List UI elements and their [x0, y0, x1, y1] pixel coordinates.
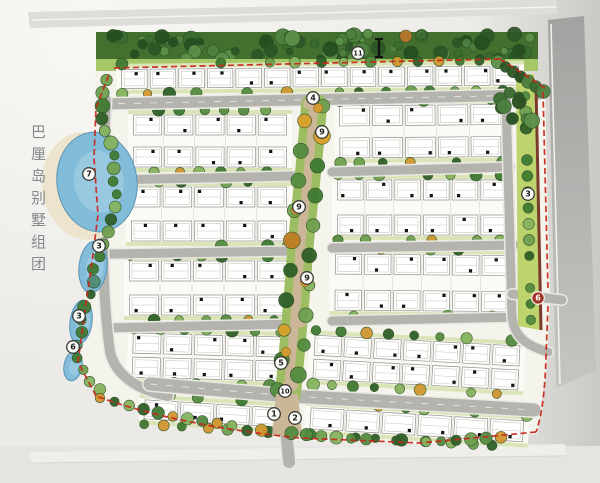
villa-marker-square: [139, 371, 142, 374]
plan-key-marker-10-11: 10: [279, 385, 292, 398]
villa-marker-square: [144, 224, 147, 227]
tree-icon: [522, 171, 533, 182]
villa-marker-square: [473, 294, 476, 297]
key-marker-number: 6: [535, 294, 541, 303]
villa-marker-square: [155, 403, 158, 406]
villa-marker-square: [298, 71, 301, 74]
villa-marker-square: [269, 150, 272, 153]
villa-marker-square: [411, 367, 414, 370]
tree-icon: [264, 44, 277, 57]
villa-marker-square: [355, 351, 358, 354]
tree-icon: [99, 126, 110, 137]
villa-marker-square: [363, 70, 366, 73]
tree-icon: [480, 432, 492, 444]
tree-icon: [110, 151, 119, 160]
shrub-orange: [281, 347, 290, 356]
villa-marker-square: [375, 268, 378, 271]
villa-marker-square: [137, 336, 140, 339]
villa-marker-square: [237, 129, 240, 132]
tree-icon: [307, 378, 320, 391]
villa-marker-square: [178, 150, 181, 153]
villa-marker-square: [203, 373, 206, 376]
tree-icon: [436, 332, 445, 341]
key-marker-number: 5: [278, 359, 284, 368]
villa-marker-square: [149, 118, 152, 121]
villa-marker-square: [330, 363, 333, 366]
key-marker-number: 4: [310, 94, 316, 103]
road: [112, 176, 296, 180]
tree-icon: [197, 38, 204, 45]
tree-icon: [108, 176, 118, 186]
villa-marker-square: [149, 264, 152, 267]
villa-marker-square: [508, 435, 511, 438]
villa-marker-square: [378, 152, 381, 155]
tree-icon: [495, 431, 507, 443]
villa-marker-square: [444, 69, 447, 72]
tree-icon: [347, 380, 359, 392]
tree-icon: [512, 44, 525, 57]
tree-icon: [291, 173, 306, 188]
tree-icon: [455, 56, 464, 65]
tree-icon: [525, 33, 534, 42]
tree-icon: [339, 49, 347, 57]
villa-marker-square: [463, 218, 466, 221]
villa-marker-square: [170, 348, 173, 351]
tree-icon: [145, 35, 153, 43]
tree-icon: [72, 353, 82, 363]
entrance-marker-6-14: 6: [532, 292, 545, 305]
villa-marker-square: [220, 71, 223, 74]
master-plan-photo: 11497933936510126 巴厘岛别墅组团: [0, 0, 600, 483]
tree-icon: [289, 57, 300, 68]
tree-icon: [452, 38, 462, 48]
villa-marker-square: [238, 161, 241, 164]
villa-marker-square: [405, 229, 408, 232]
tree-icon: [139, 420, 149, 430]
villa-marker-square: [135, 72, 138, 75]
villa-marker-square: [170, 309, 173, 312]
villa-marker-square: [229, 374, 232, 377]
villa-marker-square: [362, 109, 365, 112]
tree-icon: [346, 29, 357, 40]
plan-key-marker-11-0: 11: [352, 47, 365, 60]
villa-marker-square: [328, 424, 331, 427]
tree-icon: [514, 92, 524, 102]
plan-key-marker-5-10: 5: [275, 357, 288, 370]
villa-marker-square: [410, 194, 413, 197]
villa-marker-square: [382, 183, 385, 186]
tree-icon: [109, 201, 121, 213]
villa-marker-square: [484, 69, 487, 72]
villa-marker-square: [173, 372, 176, 375]
key-marker-number: 9: [319, 128, 325, 137]
tree-icon: [102, 226, 114, 238]
villa-marker-square: [387, 120, 390, 123]
tree-icon: [409, 331, 418, 340]
tree-icon: [316, 57, 326, 67]
tree-icon: [311, 325, 321, 335]
villa-marker-square: [417, 355, 420, 358]
villa-marker-square: [454, 345, 457, 348]
tree-icon: [506, 113, 518, 125]
tree-icon: [96, 86, 109, 99]
villa-marker-square: [402, 305, 405, 308]
tree-icon: [419, 32, 427, 40]
tree-icon: [216, 58, 226, 68]
plan-key-marker-4-1: 4: [307, 92, 320, 105]
key-marker-number: 7: [86, 170, 92, 179]
tree-icon: [370, 383, 379, 392]
tree-icon: [302, 248, 317, 263]
tree-icon: [130, 50, 139, 59]
villa-marker-square: [469, 269, 472, 272]
villa-marker-square: [486, 151, 489, 154]
tree-icon: [383, 329, 394, 340]
tree-icon: [105, 214, 117, 226]
tree-icon: [497, 99, 511, 113]
villa-marker-square: [391, 366, 394, 369]
villa-marker-square: [459, 119, 462, 122]
villa-marker-square: [270, 375, 273, 378]
villa-marker-square: [503, 359, 506, 362]
villa-marker-square: [498, 294, 501, 297]
tree-icon: [107, 162, 120, 175]
villa-marker-square: [200, 298, 203, 301]
villa-marker-square: [350, 229, 353, 232]
villa-block: [332, 169, 512, 245]
tree-icon: [360, 433, 372, 445]
villa-marker-square: [243, 224, 246, 227]
tree-icon: [104, 136, 118, 150]
villa-marker-square: [341, 194, 344, 197]
villa-marker-square: [198, 264, 201, 267]
tree-icon: [526, 315, 535, 324]
villa-marker-square: [350, 375, 353, 378]
plan-key-marker-6-9: 6: [67, 341, 80, 354]
tree-icon: [475, 56, 484, 65]
tree-icon: [310, 40, 318, 48]
road: [110, 251, 296, 254]
villa-marker-square: [452, 381, 455, 384]
tree-icon: [298, 114, 312, 128]
villa-marker-square: [198, 190, 201, 193]
villa-marker-square: [325, 70, 328, 73]
tree-icon: [279, 293, 294, 308]
tree-icon: [336, 37, 345, 46]
villa-marker-square: [489, 229, 492, 232]
tree-icon: [360, 327, 372, 339]
villa-block: [128, 104, 292, 178]
tree-icon: [113, 30, 123, 40]
villa-marker-square: [212, 161, 215, 164]
tree-icon: [158, 420, 170, 432]
key-marker-number: 11: [353, 50, 363, 58]
tree-icon: [149, 43, 161, 55]
villa-marker-square: [408, 429, 411, 432]
plan-key-marker-9-7: 9: [301, 272, 314, 285]
villa-marker-square: [213, 338, 216, 341]
tree-icon: [87, 263, 98, 274]
tree-icon: [278, 324, 290, 336]
villa-block: [329, 244, 514, 323]
tree-icon: [466, 388, 475, 397]
villa-marker-square: [511, 384, 514, 387]
key-marker-number: 10: [280, 388, 290, 396]
villa-marker-square: [493, 183, 496, 186]
villa-marker-square: [171, 264, 174, 267]
tree-icon: [241, 425, 252, 436]
villa-marker-square: [495, 258, 498, 261]
road: [332, 167, 510, 172]
road: [106, 324, 296, 328]
plan-key-marker-3-5: 3: [93, 240, 106, 253]
key-marker-number: 2: [292, 414, 298, 423]
tree-icon: [327, 380, 336, 389]
tree-icon: [507, 27, 522, 42]
tree-icon: [293, 143, 308, 158]
key-marker-number: 9: [304, 274, 310, 283]
key-marker-number: 1: [271, 410, 277, 419]
villa-marker-square: [410, 108, 413, 111]
tree-icon: [284, 263, 298, 277]
tree-icon: [526, 283, 535, 292]
tree-icon: [523, 234, 534, 245]
villa-marker-square: [429, 151, 432, 154]
plan-key-marker-1-12: 1: [268, 408, 281, 421]
tree-icon: [525, 251, 534, 260]
key-marker-number: 3: [76, 312, 82, 321]
villa-marker-square: [356, 152, 359, 155]
tree-icon: [285, 31, 301, 47]
villa-marker-square: [471, 346, 474, 349]
villa-marker-square: [473, 370, 476, 373]
tree-icon: [310, 158, 325, 173]
villa-marker-square: [264, 309, 267, 312]
villa-marker-square: [410, 257, 413, 260]
tree-icon: [392, 436, 401, 445]
key-marker-number: 6: [70, 343, 76, 352]
villa-marker-square: [365, 426, 368, 429]
plan-key-marker-9-4: 9: [293, 201, 306, 214]
villa-marker-square: [481, 119, 484, 122]
villa-marker-square: [174, 224, 177, 227]
tree-icon: [284, 232, 301, 249]
key-marker-number: 3: [96, 242, 102, 251]
tree-icon: [474, 35, 489, 50]
tree-icon: [112, 190, 121, 199]
plan-key-marker-2-13: 2: [289, 412, 302, 425]
villa-marker-square: [380, 304, 383, 307]
tree-icon: [363, 29, 373, 39]
plan-key-marker-7-3: 7: [83, 168, 96, 181]
villa-marker-square: [261, 350, 264, 353]
villa-marker-square: [393, 353, 396, 356]
tree-icon: [308, 188, 323, 203]
tree-icon: [265, 58, 274, 67]
key-marker-number: 9: [296, 203, 302, 212]
tree-icon: [346, 434, 356, 444]
tree-icon: [290, 367, 306, 383]
villa-marker-square: [240, 201, 243, 204]
villa-marker-square: [425, 70, 428, 73]
plan-key-marker-9-2: 9: [316, 126, 329, 139]
villa-marker-square: [271, 235, 274, 238]
tree-icon: [395, 384, 405, 394]
tree-icon: [492, 389, 502, 399]
villa-block: [126, 176, 293, 252]
villa-marker-square: [430, 194, 433, 197]
tree-icon: [461, 332, 473, 344]
tree-icon: [330, 431, 343, 444]
villa-marker-square: [269, 201, 272, 204]
villa-block: [124, 250, 292, 326]
tree-icon: [501, 47, 508, 54]
villa-marker-square: [442, 258, 445, 261]
villa-marker-square: [241, 298, 244, 301]
road: [332, 317, 518, 321]
tree-icon: [523, 218, 534, 229]
villa-marker-square: [270, 275, 273, 278]
tree-icon: [168, 412, 178, 422]
villa-marker-square: [183, 129, 186, 132]
tree-icon: [298, 339, 311, 352]
tree-icon: [96, 113, 108, 125]
shrub-orange: [313, 103, 322, 112]
key-marker-number: 3: [525, 190, 531, 199]
tree-icon: [316, 431, 327, 442]
road: [332, 245, 514, 248]
villa-marker-square: [496, 79, 499, 82]
tree-icon: [306, 219, 320, 233]
villa-marker-square: [345, 293, 348, 296]
tree-icon: [523, 203, 533, 213]
villa-marker-square: [457, 194, 460, 197]
villa-marker-square: [151, 150, 154, 153]
site-title: 巴厘岛别墅组团: [28, 124, 49, 278]
villa-marker-square: [179, 190, 182, 193]
tree-icon: [336, 326, 347, 337]
villa-marker-square: [243, 275, 246, 278]
villa-marker-square: [141, 190, 144, 193]
tree-icon: [524, 113, 540, 129]
villa-marker-square: [389, 70, 392, 73]
villa-marker-square: [135, 309, 138, 312]
villa-marker-square: [353, 257, 356, 260]
site-plan-svg: 11497933936510126: [0, 0, 600, 483]
villa-marker-square: [441, 431, 444, 434]
villa-marker-square: [431, 229, 434, 232]
plan-key-marker-3-6: 3: [522, 188, 535, 201]
tree-icon: [155, 30, 170, 45]
villa-marker-square: [270, 81, 273, 84]
tree-icon: [414, 384, 427, 397]
villa-marker-square: [448, 151, 451, 154]
tree-icon: [323, 42, 338, 57]
villa-marker-square: [375, 229, 378, 232]
villa-marker-square: [201, 224, 204, 227]
tree-icon: [168, 37, 178, 47]
tree-icon: [299, 308, 314, 323]
villa-marker-square: [243, 339, 246, 342]
villa-marker-square: [264, 118, 267, 121]
villa-marker-square: [156, 72, 159, 75]
tree-icon: [231, 47, 239, 55]
villa-marker-square: [442, 294, 445, 297]
plan-key-marker-3-8: 3: [73, 310, 86, 323]
tree-icon: [286, 48, 293, 55]
tree-icon: [522, 155, 533, 166]
villa-marker-square: [192, 72, 195, 75]
tree-icon: [400, 30, 412, 42]
villa-marker-square: [217, 118, 220, 121]
villa-marker-square: [321, 350, 324, 353]
villa-marker-square: [250, 81, 253, 84]
